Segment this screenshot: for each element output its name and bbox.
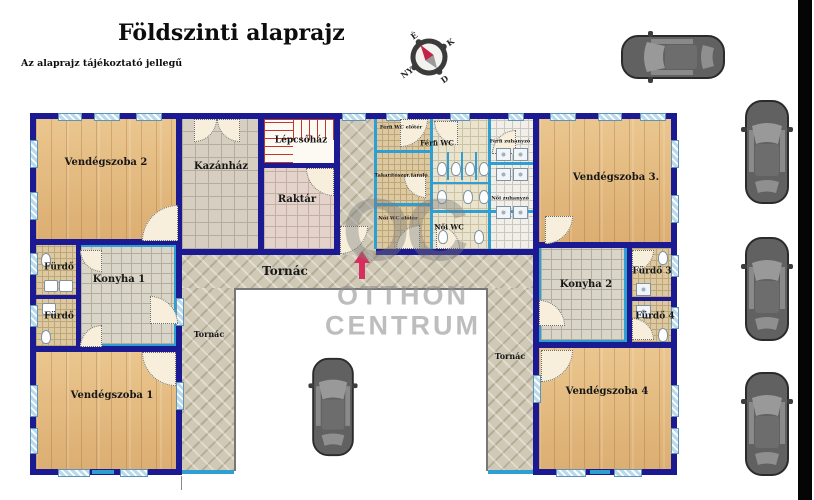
toilet-icon [437, 190, 447, 204]
partition-shower-mid [488, 162, 533, 165]
window-glass [590, 470, 610, 474]
toilet-icon [479, 162, 489, 176]
window [550, 113, 576, 121]
partition-konyha2 [624, 248, 627, 342]
label-ferfi-zuhanyzo: Férfi zuhanyzó [490, 140, 531, 145]
wall-right-wing-inner [533, 113, 539, 475]
label-vendegszoba-1: Vendégszoba 1 [71, 391, 154, 401]
label-noi-zuhanyzo: Női zuhanyzó [491, 197, 529, 202]
partition-wc-mid [433, 182, 488, 184]
label-raktar: Raktár [278, 195, 316, 205]
window-glass [92, 470, 114, 474]
wall-kazanhaz-right [258, 113, 264, 249]
car-top-view [308, 356, 358, 462]
courtyard-edge-top [236, 288, 486, 290]
photo-edge-bar [798, 0, 812, 500]
label-noi-wc-eloter: Női WC előtér [378, 217, 417, 222]
shower-icon [513, 168, 528, 181]
car-top-view [741, 235, 793, 347]
window [94, 113, 120, 121]
window [533, 375, 541, 403]
label-konyha-2: Konyha 2 [560, 280, 612, 290]
toilet-icon [465, 162, 475, 176]
shower-icon [496, 168, 511, 181]
entrance-arrow-icon [354, 251, 370, 279]
window [598, 113, 622, 121]
toilet-icon [437, 162, 447, 176]
label-lepcsohaz: Lépcsőház [275, 137, 327, 146]
page-subtitle: Az alaprajz tájékoztató jellegű [21, 58, 182, 69]
window [508, 113, 524, 121]
window [30, 428, 38, 454]
partition-takarito-bottom [374, 203, 433, 206]
shower-icon [496, 206, 511, 219]
room-konyha-2 [539, 248, 627, 342]
courtyard-edge-left [234, 288, 236, 471]
window [30, 192, 38, 220]
toilet-icon [463, 190, 473, 204]
window [671, 428, 679, 454]
window [671, 255, 679, 277]
shower-icon [513, 206, 528, 219]
dimension-tick [181, 476, 182, 490]
wall-tornac-top-right [376, 249, 533, 255]
compass-icon: É K D NY [397, 25, 461, 89]
window [342, 113, 366, 121]
label-konyha-1: Konyha 1 [93, 275, 145, 285]
label-vendegszoba-2: Vendégszoba 2 [65, 158, 148, 168]
wall-left-wing-inner [176, 113, 182, 475]
shower-icon [496, 148, 511, 161]
window [671, 195, 679, 223]
wall-furdo1-furdo2 [36, 295, 76, 299]
shower-icon [513, 148, 528, 161]
label-takaritoszer-tarolo: Takarítószer tároló [374, 174, 427, 179]
car-top-view [741, 98, 793, 210]
partition-eloter-bottom [374, 150, 433, 153]
window [120, 469, 148, 477]
toilet-icon [479, 190, 489, 204]
toilet-icon [438, 230, 448, 244]
wall-tornac-top-left [176, 249, 336, 255]
wall-furdo-konyha1 [76, 245, 81, 346]
window [136, 113, 162, 121]
sink-icon [44, 280, 58, 292]
label-tornac-right: Tornác [495, 352, 525, 360]
shower-icon [636, 283, 651, 296]
label-furdo-4: Fürdő 4 [635, 313, 674, 322]
label-furdo-1: Fürdő [44, 264, 74, 273]
tornac-right-floor [488, 288, 533, 471]
label-vendegszoba-4: Vendégszoba 4 [566, 387, 649, 397]
label-noi-wc: Női WC [434, 224, 464, 231]
window [671, 140, 679, 168]
wall-below-vendegszoba3 [533, 242, 677, 248]
toilet-icon [658, 251, 668, 265]
window [30, 140, 38, 168]
label-tornac-left: Tornác [194, 330, 224, 338]
window [671, 385, 679, 417]
window [30, 253, 38, 275]
car-top-view [618, 30, 728, 84]
toilet-icon [451, 162, 461, 176]
car-top-view [741, 370, 793, 482]
toilet-icon [474, 230, 484, 244]
floor-plan-page: Vendégszoba 2 Kazánház Lépcsőház Raktár … [0, 0, 814, 500]
sink-icon [59, 280, 73, 292]
label-tornac-main: Tornác [262, 265, 308, 277]
toilet-icon [41, 330, 51, 344]
page-title: Földszinti alaprajz [118, 20, 345, 46]
label-vendegszoba-3: Vendégszoba 3. [573, 173, 659, 183]
window [58, 469, 90, 477]
tornac-left-floor [182, 288, 234, 471]
label-kazanhaz: Kazánház [194, 162, 248, 172]
window [640, 113, 666, 121]
toilet-icon [658, 328, 668, 342]
watermark-line2: CENTRUM [325, 311, 481, 342]
window [556, 469, 586, 477]
label-ferfi-wc: Férfi WC [420, 140, 454, 147]
wall-above-vendegszoba4 [533, 342, 677, 348]
window [30, 305, 38, 327]
tornac-left-glass [182, 470, 234, 474]
window [450, 113, 470, 121]
wall-furdo3-furdo4 [632, 297, 677, 301]
window [30, 385, 38, 417]
window [58, 113, 82, 121]
tornac-right-glass [488, 470, 533, 474]
partition-wc-left [374, 119, 377, 249]
stall-divider [447, 152, 449, 180]
compass-south-label: D [439, 73, 450, 85]
window [614, 469, 642, 477]
label-furdo-2: Fürdő [44, 313, 74, 322]
label-ferfi-wc-eloter: Férfi WC előtér [380, 126, 422, 131]
stall-divider [461, 152, 463, 180]
window [176, 382, 184, 410]
stall-divider [475, 152, 477, 180]
label-furdo-3: Fürdő 3 [632, 268, 671, 277]
courtyard-edge-right [486, 288, 488, 471]
